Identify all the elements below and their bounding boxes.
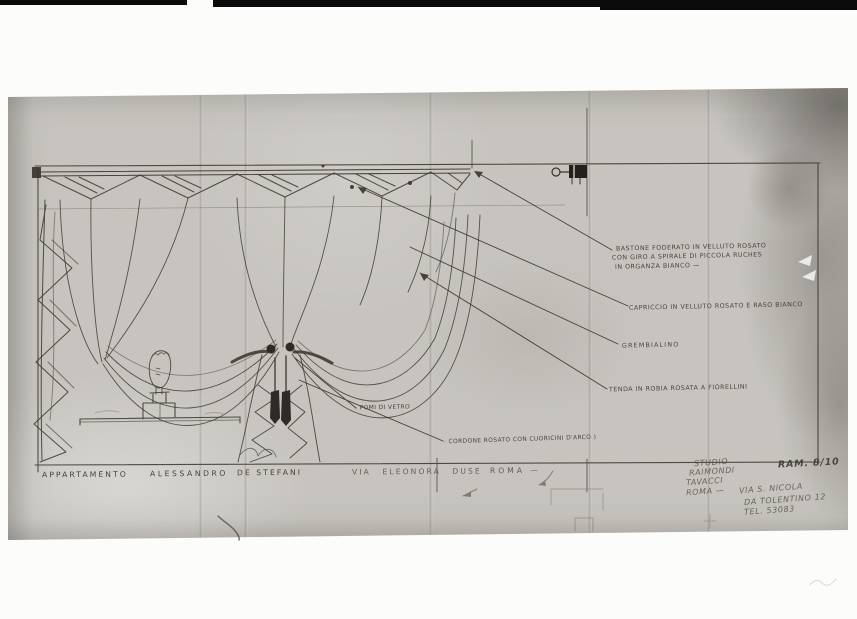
rod-bracket-detail <box>552 165 587 184</box>
title-street: VIA ELEONORA DUSE <box>352 467 482 477</box>
left-cascade <box>34 200 78 462</box>
leader-lines <box>295 171 628 441</box>
annotation-grembialino: GREMBIALINO <box>622 340 680 351</box>
white-arrow-marks <box>798 255 816 281</box>
annotation-bastone-line3: IN ORGANZA BIANCO — <box>615 261 700 272</box>
title-client-first: ALESSANDRO <box>150 469 228 479</box>
curtain-swags <box>60 193 480 426</box>
title-city: ROMA — <box>490 466 541 475</box>
annotation-pomi: - POMI DI VETRO <box>355 403 410 413</box>
scanned-drawing-photo: BASTONE FODERATO IN VELLUTO ROSATO CON G… <box>0 0 857 619</box>
glass-knobs <box>232 343 332 364</box>
tassels <box>270 356 291 426</box>
title-project: APPARTAMENTO <box>42 470 128 480</box>
title-client-last: DE STEFANI <box>237 468 302 477</box>
